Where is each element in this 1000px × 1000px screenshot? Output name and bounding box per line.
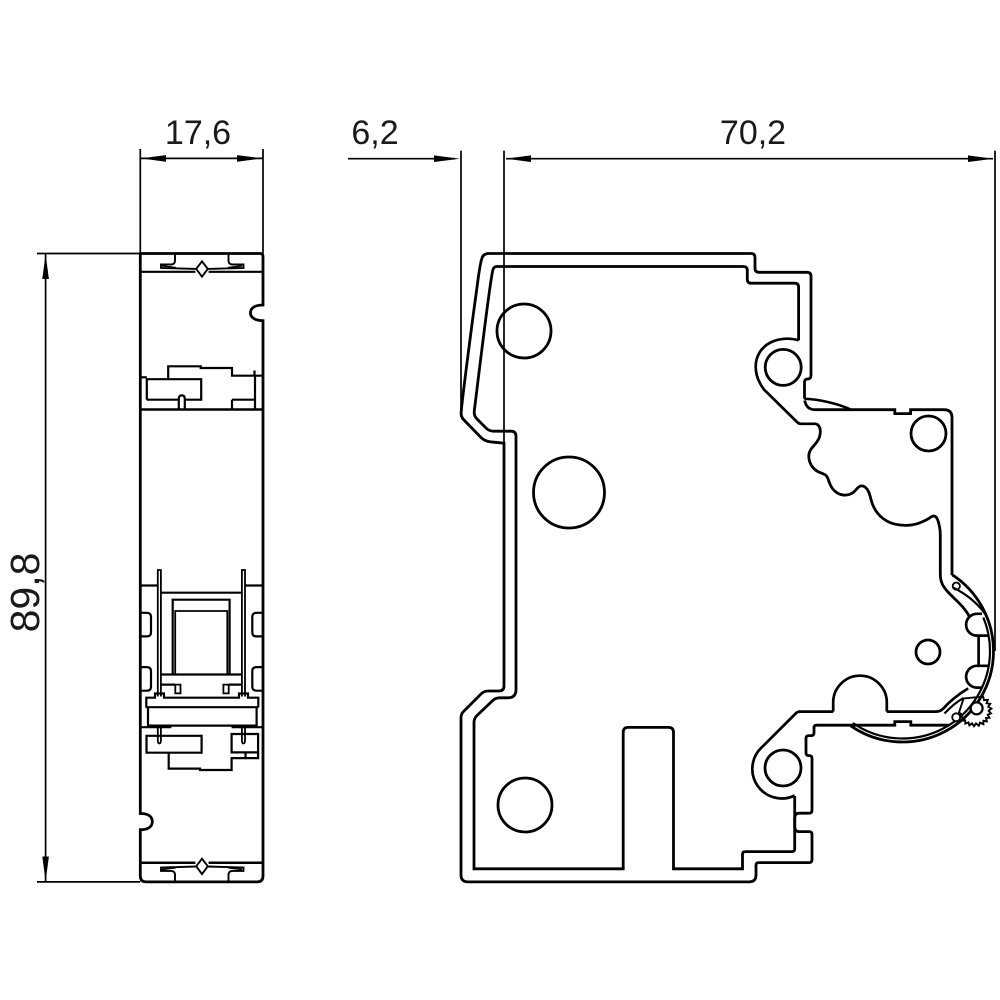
svg-text:89,8: 89,8 bbox=[2, 553, 48, 633]
svg-text:17,6: 17,6 bbox=[165, 114, 231, 152]
svg-text:70,2: 70,2 bbox=[720, 114, 786, 152]
svg-text:6,2: 6,2 bbox=[351, 114, 398, 152]
